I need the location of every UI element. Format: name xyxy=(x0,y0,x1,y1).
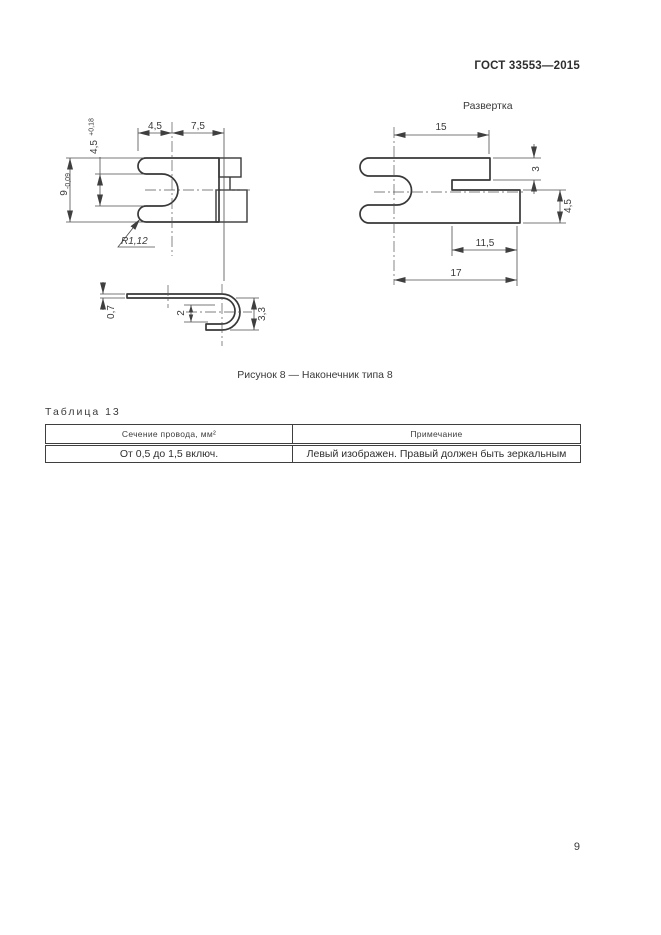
dim-label-radius: R1,12 xyxy=(121,236,148,247)
column-header-wire-section: Сечение провода, мм² xyxy=(46,425,293,445)
dim-label-length: 15 xyxy=(435,122,447,133)
dim-label-total: 17 xyxy=(450,268,462,279)
dim-label-height-tol: -0,09 xyxy=(65,173,72,189)
dim-label-slot: 4,5 xyxy=(89,140,100,154)
page-number: 9 xyxy=(520,841,580,853)
figure-caption: Рисунок 8 — Наконечник типа 8 xyxy=(90,369,540,381)
table-header-row: Сечение провода, мм² Примечание xyxy=(46,425,581,445)
dim-label-slot-tol: +0,18 xyxy=(89,118,96,136)
table-13: Сечение провода, мм² Примечание От 0,5 д… xyxy=(45,424,581,463)
dim-label-tab-width: 11,5 xyxy=(476,238,495,249)
flat-pattern-outline xyxy=(360,158,520,223)
top-view-drawing: 4,5 7,5 9 -0,09 4,5 +0,18 R1,12 xyxy=(59,118,250,281)
dim-label-width-a: 4,5 xyxy=(148,121,162,132)
column-header-note: Примечание xyxy=(293,425,581,445)
dim-label-outer: 3,3 xyxy=(257,307,268,321)
dim-label-tab-height: 4,5 xyxy=(563,199,574,213)
dim-label-thickness: 0,7 xyxy=(106,305,117,319)
dim-label-width-b: 7,5 xyxy=(191,121,205,132)
table-row: От 0,5 до 1,5 включ. Левый изображен. Пр… xyxy=(46,445,581,463)
side-view-drawing: 0,7 2 3,3 xyxy=(100,282,268,346)
table-title: Таблица 13 xyxy=(45,406,121,418)
flat-pattern-label: Развертка xyxy=(463,100,513,112)
dim-label-inner: 2 xyxy=(176,310,187,316)
cell-wire-section: От 0,5 до 1,5 включ. xyxy=(46,445,293,463)
flat-pattern-drawing: Развертка 15 3 4,5 11,5 17 xyxy=(360,100,574,286)
document-page: { "page": { "standard": "ГОСТ 33553—2015… xyxy=(0,0,661,935)
curl-lower-rect xyxy=(216,190,247,222)
curl-upper-rect xyxy=(219,158,241,177)
figure-8-drawing: 4,5 7,5 9 -0,09 4,5 +0,18 R1,12 Развертк… xyxy=(0,0,661,400)
dim-label-height: 9 xyxy=(59,190,70,196)
dim-label-step: 3 xyxy=(531,166,542,172)
cell-note: Левый изображен. Правый должен быть зерк… xyxy=(293,445,581,463)
